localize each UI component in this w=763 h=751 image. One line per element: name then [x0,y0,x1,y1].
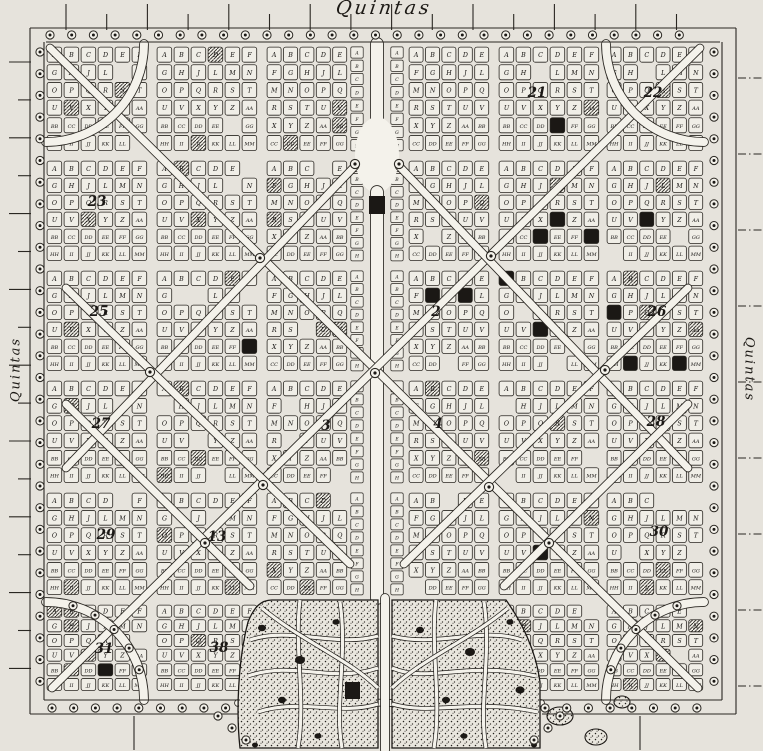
plot-letter: F [271,403,277,410]
plot-letter: S [230,200,235,207]
plot-letter: C [538,498,543,505]
plot-letter: D [320,498,326,505]
plot-letter: U [321,438,327,445]
plot-letter: L [479,293,484,300]
tree-icon [39,615,42,618]
plot-letter: C [538,609,543,616]
tree-icon [713,51,716,54]
section-number: 13 [208,529,227,545]
tree-icon [609,707,612,710]
tree-icon [374,34,377,37]
plot-letter: GG [246,124,254,130]
plot-letter: B [520,52,526,59]
plot-letter: E [229,609,235,616]
plot-letter: DD [193,124,202,130]
plot-letter: B [429,276,435,283]
plot-letter: X [413,455,419,462]
tree-icon [266,34,269,37]
plot-letter: AA [461,124,470,130]
tree-icon [116,707,119,710]
plot-letter: DD [286,141,295,147]
oval-plaza [355,117,399,193]
plot-letter: X [271,567,277,574]
plot-letter: E [119,52,125,59]
plot-letter: C [196,166,201,173]
plot-letter: C [395,190,399,196]
plot-letter: X [644,653,650,660]
plot-letter: D [354,313,359,319]
plot-cell [550,212,565,226]
plot-letter: N [588,183,595,190]
plot-letter: N [136,293,143,300]
plot-letter: M [412,200,420,207]
plot-letter: DD [193,235,202,241]
plot-letter: P [320,87,326,94]
plot-letter: LL [118,683,126,689]
plot-letter: Z [446,123,452,130]
plot-letter: GG [588,568,596,574]
plot-letter: BB [477,235,486,241]
plot-letter: EE [211,456,220,462]
plot-letter: P [178,638,184,645]
plot-letter: L [660,515,665,522]
plot-letter: Q [479,200,484,207]
plot-letter: G [288,70,293,77]
section-number: 22 [643,85,663,101]
plot-letter: S [230,638,235,645]
plot-cell [607,305,621,319]
plot-letter: Z [571,217,577,224]
plot-letter: LL [570,683,578,689]
plot-letter: U [162,217,168,224]
plot-letter: U [52,438,58,445]
plot-letter: L [212,183,217,190]
plot-letter: BB [335,235,344,241]
plot-letter: C [86,386,91,393]
plot-letter: X [85,550,91,557]
plot-letter: U [463,550,469,557]
plot-letter: N [246,403,253,410]
plot-letter: S [230,310,235,317]
plot-letter: B [429,166,435,173]
plot-letter: N [692,293,699,300]
tree-icon [39,333,42,336]
plot-letter: GG [336,586,344,592]
plot-letter: F [413,70,419,77]
plot-letter: M [675,515,683,522]
plot-letter: DD [83,456,92,462]
plot-letter: E [571,609,577,616]
tree-icon [569,34,572,37]
plot-letter: AA [245,551,254,557]
plot-letter: DD [535,456,544,462]
plot-letter: EE [211,235,220,241]
plot-letter: G [52,70,57,77]
tree-icon [202,707,205,710]
plot-letter: P [627,533,633,540]
tree-icon [39,202,42,205]
plot-letter: GG [336,252,344,258]
plot-letter: CC [178,235,186,241]
plot-letter: LL [570,252,578,258]
plot-letter: U [162,438,168,445]
plot-letter: F [588,52,594,59]
plot-letter: EE [553,456,562,462]
plot-letter: G [162,183,167,190]
park-grove [333,619,340,625]
plot-letter: O [612,638,618,645]
tree-icon [713,398,716,401]
plot-letter: R [413,105,419,112]
plot-letter: HH [49,362,59,368]
tree-icon [634,628,637,631]
plot-letter: O [162,533,168,540]
plot-letter: H [178,70,185,77]
plot-letter: LL [228,362,236,368]
plot-letter: KK [101,474,110,480]
plot-letter: CC [178,568,186,574]
plot-letter: C [538,52,543,59]
plot-letter: KK [658,474,667,480]
plot-cell [550,118,565,133]
plot-letter: Q [644,200,649,207]
plot-letter: P [178,533,184,540]
park-grove [258,625,266,631]
crossing-node [203,541,206,544]
plot-letter: Z [119,217,125,224]
plot-letter: X [195,105,201,112]
plot-letter: D [354,90,359,96]
plot-letter: A [503,52,509,59]
tree-icon [654,614,657,617]
plot-letter: G [430,515,435,522]
tree-icon [713,72,716,75]
tree-icon [504,34,507,37]
tree-icon [713,268,716,271]
plot-letter: G [162,515,167,522]
plot-letter: O [162,638,168,645]
tree-icon [565,707,568,710]
plot-letter: F [588,166,594,173]
plot-letter: C [355,190,359,196]
plot-letter: S [677,87,682,94]
plot-letter: EE [659,568,668,574]
plot-letter: CC [520,345,528,351]
tree-icon [630,707,633,710]
plot-letter: N [287,533,294,540]
plot-letter: G [395,463,399,469]
plot-letter: MM [690,474,702,480]
plot-letter: F [246,52,252,59]
plot-letter: H [627,70,634,77]
plot-letter: EE [553,568,562,574]
plot-letter: R [554,87,560,94]
plot-letter: H [68,183,75,190]
plot-letter: P [178,87,184,94]
tree-icon [713,571,716,574]
plot-letter: U [52,550,58,557]
tree-icon [135,34,138,37]
plot-letter: F [271,70,277,77]
tree-icon [39,311,42,314]
plot-letter: DD [286,362,295,368]
tree-icon [396,34,399,37]
crossing-node [487,485,490,488]
plot-letter: DD [83,345,92,351]
plot-letter: S [430,550,435,557]
plot-letter: D [102,166,108,173]
tree-icon [128,647,131,650]
plot-letter: Z [571,327,577,334]
plot-letter: H [178,623,185,630]
plot-letter: GG [136,456,144,462]
plot-letter: EE [553,668,562,674]
plot-letter: O [52,200,58,207]
plot-letter: GG [478,586,486,592]
tree-icon [483,34,486,37]
plot-letter: M [118,293,126,300]
plot-letter: M [412,87,420,94]
plot-letter: BB [50,345,59,351]
plot-letter: C [538,276,543,283]
tree-icon [49,34,52,37]
plot-letter: M [412,533,420,540]
plot-letter: G [355,463,359,469]
plot-letter: S [677,200,682,207]
tree-icon [713,181,716,184]
plot-letter: A [611,498,617,505]
plot-letter: Z [446,455,452,462]
tree-icon [713,333,716,336]
plot-letter: U [321,217,327,224]
plot-letter: DD [642,235,651,241]
plot-letter: H [445,183,452,190]
plot-letter: L [212,403,217,410]
plot-letter: X [537,217,543,224]
plot-letter: MM [243,362,255,368]
plot-letter: R [102,87,108,94]
plot-letter: B [429,52,435,59]
tree-icon [39,137,42,140]
tree-icon [222,34,225,37]
plot-letter: E [336,276,342,283]
solid-plot [369,196,385,214]
plot-letter: HH [501,252,511,258]
tree-icon [39,441,42,444]
plot-letter: E [676,52,682,59]
plot-letter: BB [50,668,59,674]
plot-letter: H [520,70,527,77]
plot-letter: LL [228,474,236,480]
tree-icon [39,72,42,75]
plot-letter: D [660,386,666,393]
plot-letter: P [520,87,526,94]
plot-letter: Z [446,344,452,351]
plot-letter: AA [135,328,144,334]
plot-letter: C [86,166,91,173]
plot-letter: LL [675,586,683,592]
crossing-node [261,483,264,486]
plot-letter: R [554,200,560,207]
plot-letter: FF [319,141,327,147]
plot-letter: Q [86,533,91,540]
park-islet [585,729,607,745]
plot-letter: E [354,104,359,110]
plot-letter: MM [133,586,145,592]
plot-letter: FF [228,668,236,674]
quintas-plan-map: ABCDEFGHJLNOPQRSTUVXYZAABBCCDDEEFFGGHHII… [0,0,763,751]
tree-icon [39,246,42,249]
plot-letter: LL [118,586,126,592]
tree-icon [713,441,716,444]
plot-letter: DD [286,474,295,480]
plot-letter: N [692,623,699,630]
plot-letter: H [520,183,527,190]
plot-letter: O [52,87,58,94]
plot-letter: E [676,386,682,393]
plot-letter: B [354,510,359,516]
plot-letter: N [692,183,699,190]
plot-letter: G [52,403,57,410]
plot-letter: R [271,105,277,112]
plot-letter: F [136,276,142,283]
plot-letter: S [572,638,577,645]
plot-letter: GG [136,568,144,574]
plot-letter: B [354,398,359,404]
plot-letter: FF [570,456,578,462]
crossing-node [397,162,400,165]
tree-icon [713,419,716,422]
plot-letter: KK [101,683,110,689]
plot-letter: CC [412,141,420,147]
plot-letter: C [447,386,452,393]
plot-letter: G [288,515,293,522]
quintas-plan-page: ABCDEFGHJLNOPQRSTUVXYZAABBCCDDEEFFGGHHII… [0,0,763,751]
plot-letter: EE [211,124,220,130]
plot-letter: B [354,177,359,183]
plot-letter: KK [658,252,667,258]
plot-letter: S [230,421,235,428]
crossing-node [489,254,492,257]
plot-letter: C [355,300,359,306]
tree-icon [634,34,637,37]
plot-letter: Q [337,200,342,207]
tree-icon [526,34,529,37]
plot-letter: A [354,274,359,280]
plot-letter: C [644,498,649,505]
plot-cell [426,288,440,302]
plot-letter: C [644,276,649,283]
plot-letter: Z [446,567,452,574]
tree-icon [713,485,716,488]
plot-letter: A [354,51,359,57]
plot-letter: HH [609,586,619,592]
plot-letter: FF [461,252,469,258]
plot-letter: U [321,550,327,557]
plot-letter: E [394,549,399,555]
plot-letter: N [287,421,294,428]
tree-icon [713,658,716,661]
plot-letter: O [52,638,58,645]
tree-icon [547,727,550,730]
tree-icon [695,707,698,710]
plot-letter: AA [587,439,596,445]
tree-icon [94,707,97,710]
plot-letter: D [212,609,218,616]
plot-letter: X [537,653,543,660]
plot-letter: G [430,183,435,190]
tree-icon [713,202,716,205]
plot-letter: DD [193,668,202,674]
plot-letter: C [644,52,649,59]
tree-icon [179,34,182,37]
plot-letter: HH [49,252,59,258]
plot-letter: KK [553,474,562,480]
tree-icon [137,707,140,710]
plot-letter: KK [101,252,110,258]
plot-letter: R [271,438,277,445]
park-grove [465,648,475,656]
plot-letter: G [355,575,359,581]
plot-letter: A [51,386,57,393]
label-quintas-top: Quintas [334,0,433,19]
plot-letter: U [162,653,168,660]
plot-letter: EE [302,362,311,368]
plot-letter: S [430,438,435,445]
plot-letter: B [287,386,293,393]
plot-letter: O [162,421,168,428]
plot-letter: Q [538,638,543,645]
tree-icon [39,550,42,553]
plot-letter: L [479,403,484,410]
plot-letter: BB [477,456,486,462]
tree-icon [181,707,184,710]
plot-letter: S [288,105,293,112]
plot-letter: Z [304,344,310,351]
plot-letter: EE [211,568,220,574]
plot-letter: DD [535,345,544,351]
park-grove [315,733,322,739]
plot-letter: U [612,550,618,557]
plot-letter: R [212,87,218,94]
plot-letter: Z [571,550,577,557]
plot-letter: MM [585,252,597,258]
plot-letter: DD [193,345,202,351]
plot-letter: L [212,623,217,630]
plot-letter: G [504,515,509,522]
plot-letter: R [554,638,560,645]
plot-letter: EE [444,141,453,147]
plot-letter: LL [570,362,578,368]
plot-letter: O [446,533,452,540]
tree-icon [713,528,716,531]
plot-letter: N [588,403,595,410]
plot-letter: L [554,515,559,522]
plot-letter: L [102,515,107,522]
plot-letter: CC [270,362,278,368]
plot-letter: E [354,437,359,443]
label-quintas-left: Quintas [9,337,24,403]
tree-icon [113,628,116,631]
plot-letter: EE [302,252,311,258]
plot-letter: HH [159,141,169,147]
plot-letter: S [430,217,435,224]
tree-icon [713,463,716,466]
plot-letter: C [196,386,201,393]
tree-icon [675,604,678,607]
plot-letter: D [554,276,560,283]
plot-letter: S [288,327,293,334]
